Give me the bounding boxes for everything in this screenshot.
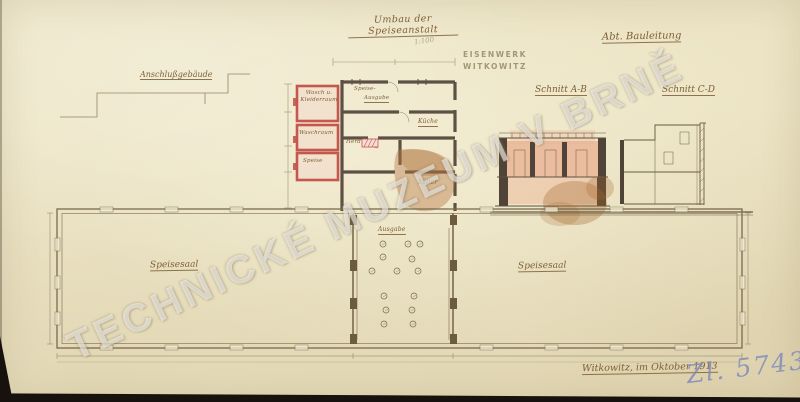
section-cd-drawing: [620, 123, 706, 205]
scanned-drawing-sheet: Umbau der Speiseanstalt 1:100 EISENWERK …: [0, 0, 800, 402]
drawing-linework: [0, 0, 800, 402]
lower-plan: [47, 207, 751, 362]
table-circles: [369, 241, 423, 327]
upper-plan: [284, 58, 455, 211]
hearth-block: [362, 139, 378, 147]
annex-outline: [60, 74, 250, 117]
